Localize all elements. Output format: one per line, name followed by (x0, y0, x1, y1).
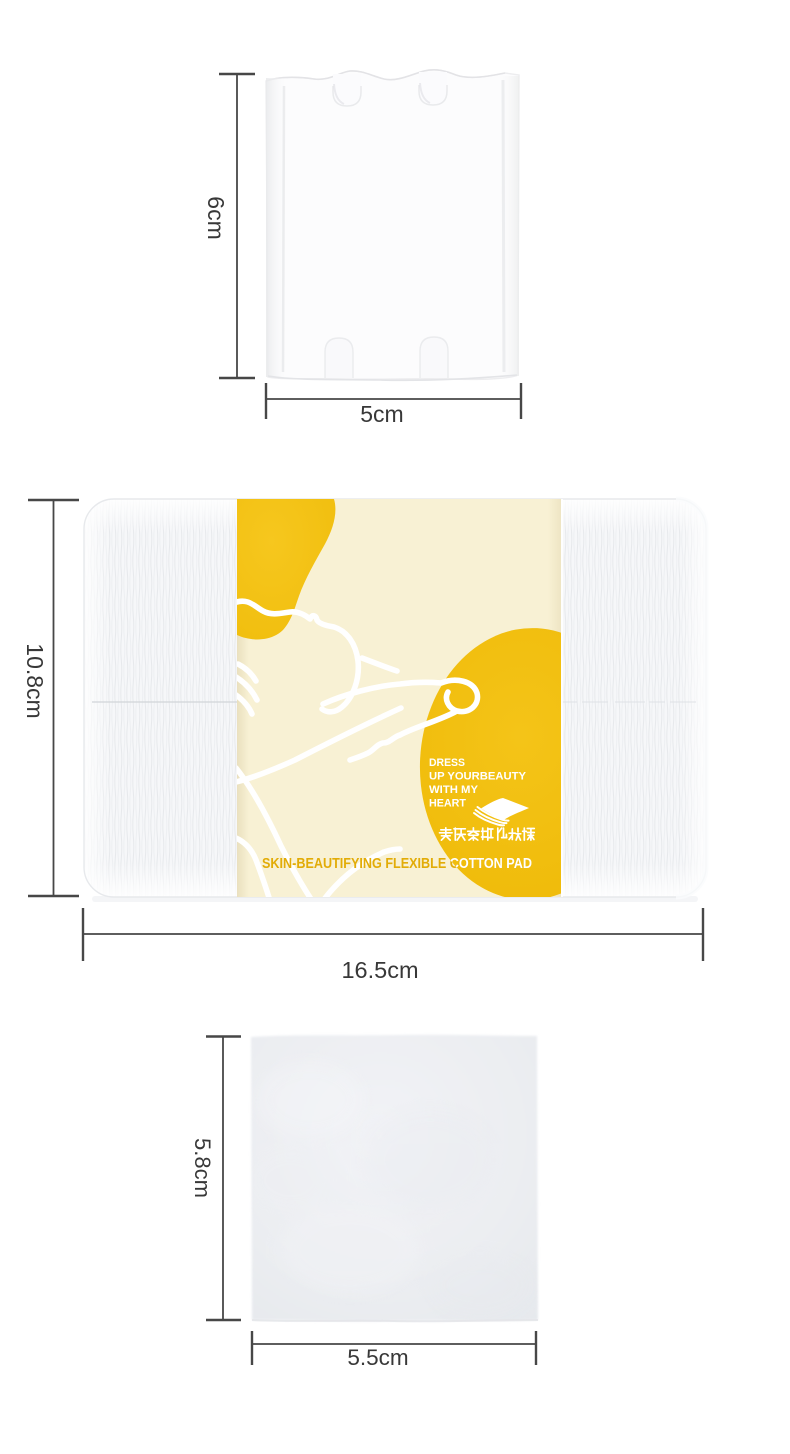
svg-text:WITH MY: WITH MY (429, 784, 479, 796)
svg-text:HEART: HEART (429, 798, 466, 810)
svg-text:UP YOURBEAUTY: UP YOURBEAUTY (429, 771, 527, 783)
svg-text:10.8cm: 10.8cm (22, 643, 48, 718)
svg-text:5.8cm: 5.8cm (190, 1138, 215, 1198)
svg-text:5.5cm: 5.5cm (347, 1345, 408, 1370)
svg-text:DRESS: DRESS (429, 757, 465, 769)
svg-text:5cm: 5cm (360, 401, 403, 427)
svg-text:16.5cm: 16.5cm (341, 957, 418, 983)
svg-text:6cm: 6cm (203, 196, 229, 239)
